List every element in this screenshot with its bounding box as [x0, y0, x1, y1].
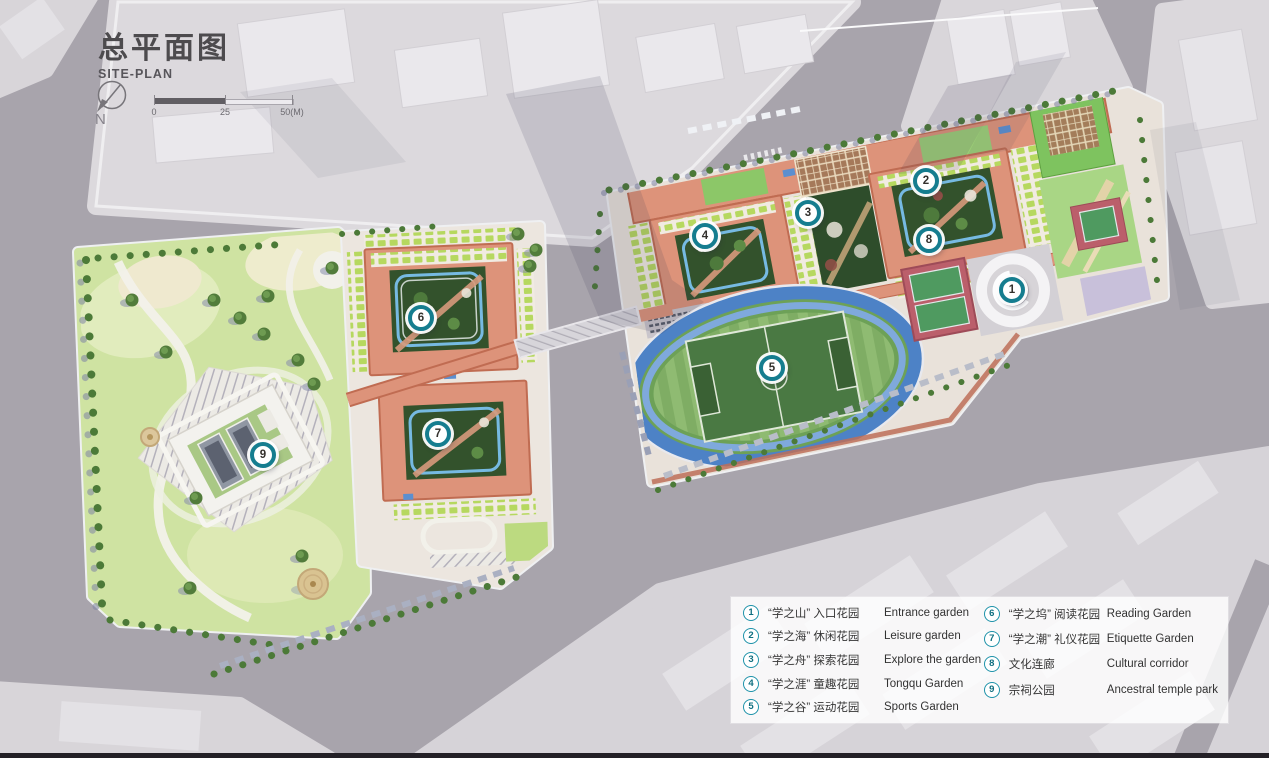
left-school-block: [344, 224, 559, 584]
title-block: 总平面图 SITE-PLAN: [98, 34, 230, 81]
legend-label-en: Explore the garden: [884, 654, 981, 666]
scale-tick-0: 0: [151, 107, 156, 117]
scale-bar: 0 25 50(M): [150, 92, 310, 118]
legend-col-2: 6“学之坞” 阅读花园Reading Garden7“学之潮” 礼仪花园Etiq…: [984, 601, 1218, 719]
legend-label-en: Ancestral temple park: [1107, 684, 1218, 696]
legend-label-cn: 宗祠公园: [1009, 682, 1107, 698]
legend-label-en: Cultural corridor: [1107, 658, 1189, 670]
legend-item-7: 7“学之潮” 礼仪花园Etiquette Garden: [984, 626, 1218, 651]
plan-marker-1: 1: [999, 277, 1025, 303]
scale-tick-50: 50(M): [280, 107, 304, 117]
site-plan-board: 总平面图 SITE-PLAN N 0 25 50(M) 123456789 1“…: [0, 0, 1269, 758]
legend-panel: 1“学之山” 入口花园Entrance garden2“学之海” 休闲花园Lei…: [731, 597, 1228, 723]
legend-label-en: Tongqu Garden: [884, 678, 963, 690]
legend-badge-7: 7: [984, 631, 1000, 647]
legend-badge-1: 1: [743, 605, 759, 621]
legend-label-cn: 文化连廊: [1009, 656, 1107, 672]
legend-badge-3: 3: [743, 652, 759, 668]
legend-item-8: 8文化连廊Cultural corridor: [984, 652, 1218, 677]
legend-label-en: Sports Garden: [884, 701, 959, 713]
bottom-border: [0, 753, 1269, 758]
legend-label-cn: “学之坞” 阅读花园: [1009, 606, 1107, 622]
legend-item-1: 1“学之山” 入口花园Entrance garden: [743, 601, 984, 625]
north-label: N: [95, 111, 106, 126]
legend-item-9: 9宗祠公园Ancestral temple park: [984, 677, 1218, 702]
page-title: 总平面图: [98, 34, 230, 64]
plan-marker-2: 2: [913, 168, 939, 194]
plan-marker-5: 5: [759, 355, 785, 381]
legend-item-4: 4“学之涯” 童趣花园Tongqu Garden: [743, 672, 984, 696]
legend-badge-9: 9: [984, 682, 1000, 698]
legend-label-cn: “学之谷” 运动花园: [768, 699, 884, 715]
ancestral-park-block: [69, 223, 366, 634]
legend-badge-2: 2: [743, 628, 759, 644]
plan-marker-7: 7: [425, 421, 451, 447]
legend-item-3: 3“学之舟” 探索花园Explore the garden: [743, 648, 984, 672]
legend-label-cn: “学之舟” 探索花园: [768, 652, 884, 668]
legend-label-cn: “学之涯” 童趣花园: [768, 676, 884, 692]
legend-label-cn: “学之海” 休闲花园: [768, 628, 884, 644]
legend-label-cn: “学之山” 入口花园: [768, 605, 884, 621]
legend-item-6: 6“学之坞” 阅读花园Reading Garden: [984, 601, 1218, 626]
legend-col-1: 1“学之山” 入口花园Entrance garden2“学之海” 休闲花园Lei…: [743, 601, 984, 719]
plan-marker-6: 6: [408, 305, 434, 331]
legend-badge-6: 6: [984, 606, 1000, 622]
legend-badge-8: 8: [984, 656, 1000, 672]
legend-label-en: Reading Garden: [1107, 608, 1191, 620]
scale-bar-solid: [154, 98, 225, 104]
scale-tick-25: 25: [220, 107, 230, 117]
ball-courts: [901, 258, 977, 341]
legend-label-en: Entrance garden: [884, 607, 969, 619]
scale-bar-open: [225, 99, 294, 105]
legend-label-en: Etiquette Garden: [1107, 633, 1194, 645]
legend-badge-5: 5: [743, 699, 759, 715]
north-arrow-icon: N: [92, 76, 136, 126]
legend-label-en: Leisure garden: [884, 630, 961, 642]
legend-item-2: 2“学之海” 休闲花园Leisure garden: [743, 625, 984, 649]
legend-badge-4: 4: [743, 676, 759, 692]
plan-marker-9: 9: [250, 442, 276, 468]
plan-marker-3: 3: [795, 200, 821, 226]
plan-marker-4: 4: [692, 223, 718, 249]
legend-item-5: 5“学之谷” 运动花园Sports Garden: [743, 695, 984, 719]
legend-label-cn: “学之潮” 礼仪花园: [1009, 631, 1107, 647]
plan-marker-8: 8: [916, 227, 942, 253]
